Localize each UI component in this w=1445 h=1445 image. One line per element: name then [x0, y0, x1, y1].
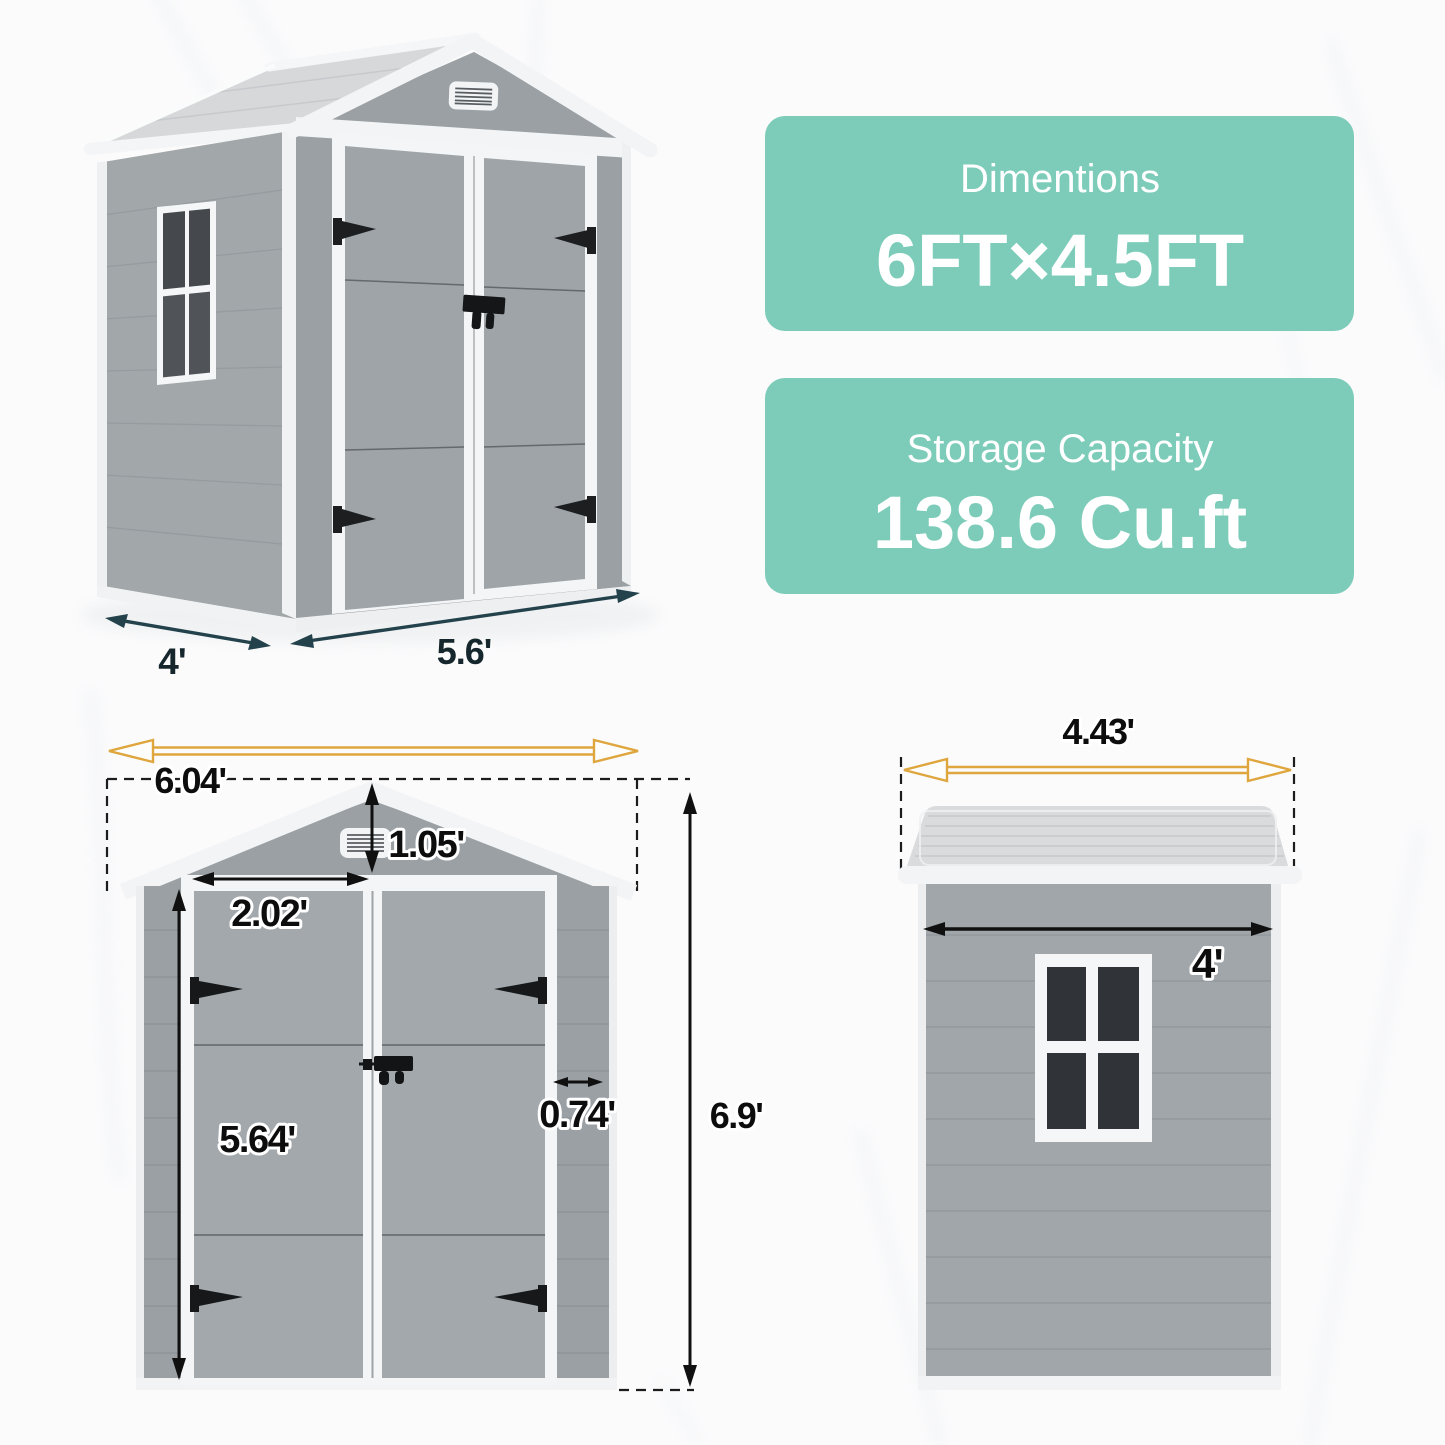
- svg-text:Dimentions: Dimentions: [960, 157, 1160, 201]
- svg-text:2.02': 2.02': [231, 893, 307, 935]
- svg-text:4.43': 4.43': [1062, 711, 1133, 752]
- svg-text:138.6 Cu.ft: 138.6 Cu.ft: [873, 481, 1247, 564]
- svg-text:6FT×4.5FT: 6FT×4.5FT: [876, 219, 1244, 302]
- svg-text:1.05': 1.05': [388, 824, 464, 866]
- svg-text:6.04': 6.04': [154, 760, 225, 801]
- svg-text:0.74': 0.74': [539, 1094, 615, 1136]
- svg-text:5.64': 5.64': [219, 1119, 295, 1161]
- svg-text:5.6': 5.6': [437, 631, 492, 672]
- svg-text:4': 4': [158, 641, 185, 682]
- svg-text:4': 4': [1192, 940, 1222, 987]
- svg-text:6.9': 6.9': [710, 1095, 763, 1136]
- svg-text:Storage Capacity: Storage Capacity: [907, 427, 1214, 471]
